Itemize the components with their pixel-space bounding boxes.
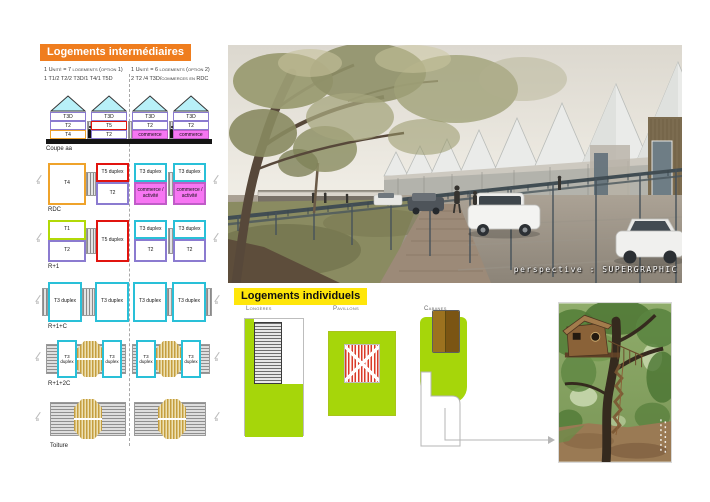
toiture-label: Toiture (50, 443, 68, 449)
presentation-board: Logements intermédiaires 1 Unité = 7 log… (0, 0, 710, 502)
legend-option1-line2: 1 T1/2 T2/2 T3D/1 T4/1 T5D (44, 75, 128, 84)
cabane-roof (432, 310, 460, 353)
roof-lantern (74, 399, 102, 439)
unit-cell: T3D (132, 112, 168, 121)
person-figure (88, 129, 91, 138)
unit-cell: T3 duplex (95, 282, 129, 322)
treehouse-photo (558, 302, 672, 463)
pavillons-parcel (328, 331, 396, 416)
section-marker-a: a (215, 300, 218, 306)
wall-hatch (206, 288, 212, 316)
unit-cell: T3D (50, 112, 86, 121)
pavillon-hip-roof (344, 344, 380, 383)
stair-core (86, 228, 96, 254)
longere-roof (254, 322, 282, 384)
cabane-roof-left (433, 311, 446, 352)
unit-cell: T2 (134, 239, 167, 262)
unit-cell: T2 (132, 121, 168, 130)
unit-cell: T3 duplex (133, 282, 167, 322)
stair-core (168, 172, 173, 196)
unit-cell: T2 (91, 130, 127, 139)
unit-cell: T4 (48, 163, 86, 205)
section-marker-a: a (215, 417, 218, 423)
longeres-parcel (244, 318, 304, 436)
section-marker-a: a (214, 180, 217, 186)
section-marker-a: a (36, 417, 39, 423)
ground-line (46, 139, 212, 144)
unit-cell: T3D (91, 112, 127, 121)
roof-lantern (158, 399, 186, 439)
cabane-roof-right (446, 311, 459, 352)
unit-cell: T4 (50, 130, 86, 139)
legend-option2: 1 Unité = 6 logements (option 2) 2 T2 /4… (131, 66, 219, 83)
section-marker-a: a (36, 357, 39, 363)
unit-cell: T5 duplex (96, 220, 129, 262)
unit-cell: T3 duplex (173, 163, 206, 182)
unit-cell: commerce (173, 130, 209, 139)
garden-area (245, 384, 303, 437)
perspective-caption: perspective : SUPERGRAPHIC (450, 265, 678, 274)
roof-triangle (173, 95, 209, 112)
legend-option2-line1: 1 Unité = 6 logements (option 2) (131, 66, 219, 75)
individuels-title: Logements individuels (234, 288, 367, 305)
unit-cell: T3 duplex (134, 220, 167, 239)
unit-cell: T3 duplex (48, 282, 82, 322)
stair-core (128, 121, 132, 139)
roof-triangle (91, 95, 127, 112)
unit-cell: T5 duplex (96, 163, 129, 182)
section-marker-a: a (37, 180, 40, 186)
rdc-label: RDC (48, 207, 61, 213)
unit-cell: T3D (173, 112, 209, 121)
legend-option1-line1: 1 Unité = 7 logements (option 1) (44, 66, 128, 75)
unit-cell: T2 (173, 239, 206, 262)
unit-cell: T2 (173, 121, 209, 130)
unit-cell: T2 (96, 182, 129, 205)
section-marker-a: a (37, 238, 40, 244)
coupe-label: Coupe aa (46, 146, 72, 152)
roof-triangle (132, 95, 168, 112)
person-figure (170, 129, 173, 138)
type-label-longeres: Longères (246, 306, 272, 312)
roof-lantern (156, 341, 182, 377)
perspective-rendering (228, 45, 682, 283)
unit-cell: T2 (48, 240, 86, 262)
roof-triangle (50, 95, 86, 112)
unit-cell: T3 duplex (102, 340, 122, 378)
section-marker-a: a (215, 357, 218, 363)
unit-cell: T2 (50, 121, 86, 130)
legend-option2-line2: 2 T2 /4 T3D/commerces en RDC (131, 75, 219, 84)
unit-cell: T3 duplex (172, 282, 206, 322)
unit-cell: T3 duplex (134, 163, 167, 182)
unit-cell: T1 (48, 220, 86, 240)
r12c-label: R+1+2C (48, 381, 70, 387)
unit-cell: T3 duplex (57, 340, 77, 378)
section-marker-a: a (36, 300, 39, 306)
unit-cell: T5 (91, 121, 127, 130)
unit-cell: commerce / activité (173, 182, 206, 205)
stair-core (86, 172, 96, 196)
unit-cell: commerce (132, 130, 168, 139)
stair-core (168, 228, 173, 254)
legend-option1: 1 Unité = 7 logements (option 1) 1 T1/2 … (44, 66, 128, 83)
unit-cell: T3 duplex (181, 340, 201, 378)
roof-lantern (77, 341, 103, 377)
section-marker-a: a (214, 238, 217, 244)
unit-cell: T3 duplex (136, 340, 156, 378)
r1-label: R+1 (48, 264, 59, 270)
car-white-small (374, 193, 402, 205)
unit-cell: commerce / activité (134, 182, 167, 205)
r1c-label: R+1+C (48, 324, 67, 330)
type-label-pavillons: Pavillons (333, 306, 359, 312)
stair-core (82, 288, 95, 316)
unit-cell: T3 duplex (173, 220, 206, 239)
reference-arrow (440, 404, 560, 446)
intermediaires-title: Logements intermédiaires (40, 44, 191, 61)
